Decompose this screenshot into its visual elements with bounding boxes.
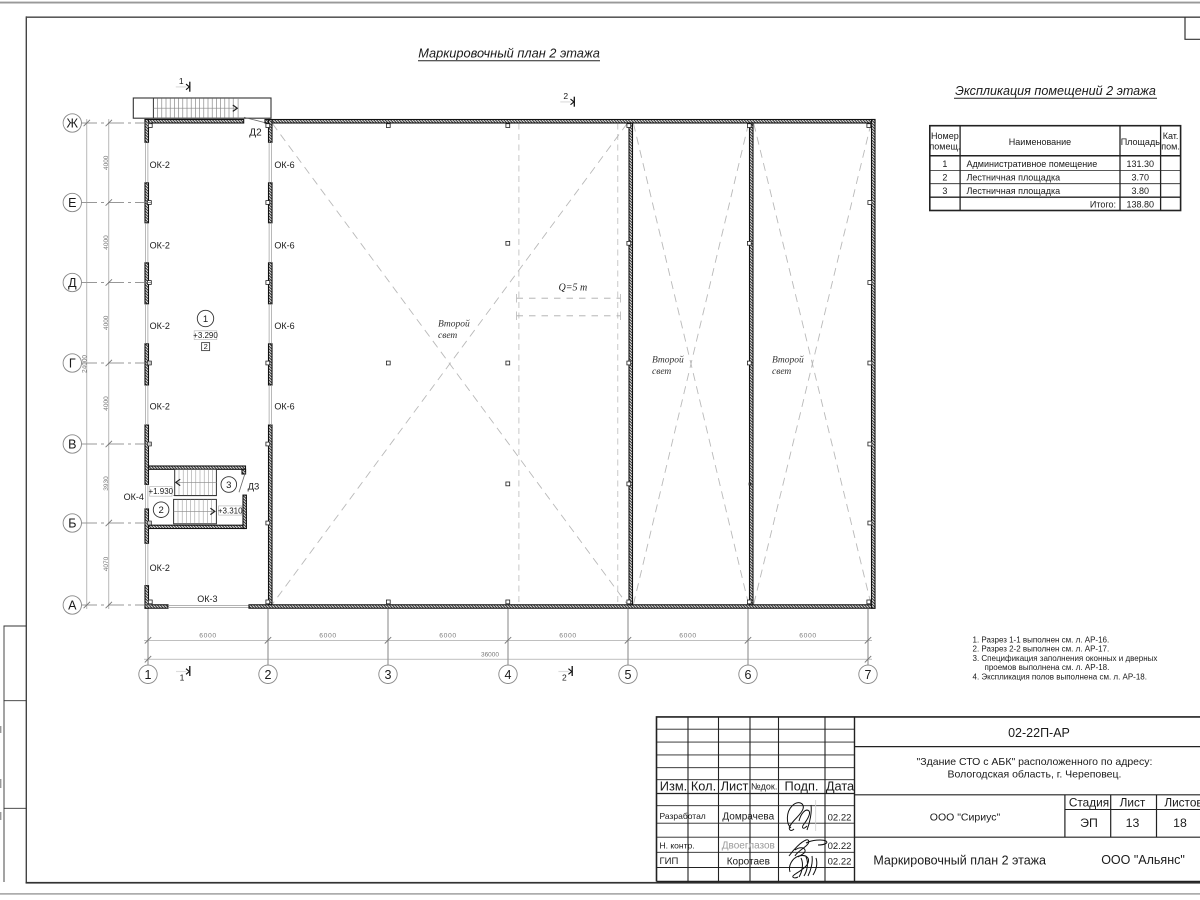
svg-text:свет: свет <box>772 367 791 377</box>
svg-text:ОК-2: ОК-2 <box>150 321 170 331</box>
svg-text:24000: 24000 <box>81 355 88 373</box>
svg-text:7: 7 <box>865 668 872 682</box>
svg-text:Лист: Лист <box>721 778 749 793</box>
svg-text:3: 3 <box>942 186 947 196</box>
svg-text:Номер: Номер <box>931 131 959 141</box>
svg-text:Е: Е <box>68 196 76 210</box>
svg-text:Г: Г <box>69 357 76 371</box>
svg-text:36000: 36000 <box>481 651 499 658</box>
svg-text:02.22: 02.22 <box>828 857 852 868</box>
svg-text:+1.930: +1.930 <box>148 487 173 496</box>
svg-text:02-22П-АР: 02-22П-АР <box>1008 726 1070 740</box>
svg-text:Итого:: Итого: <box>1090 199 1116 209</box>
svg-text:6000: 6000 <box>799 633 817 640</box>
svg-text:1: 1 <box>179 76 184 86</box>
svg-text:Маркировочный план 2 этажа: Маркировочный план 2 этажа <box>873 854 1046 868</box>
svg-text:помещ.: помещ. <box>929 142 960 152</box>
svg-text:6000: 6000 <box>319 633 337 640</box>
svg-text:Стадия: Стадия <box>1069 795 1109 809</box>
svg-text:13: 13 <box>1126 816 1140 830</box>
svg-text:5: 5 <box>625 668 632 682</box>
svg-text:А: А <box>68 599 77 613</box>
svg-text:1: 1 <box>180 673 185 683</box>
svg-text:Н. контр.: Н. контр. <box>660 841 695 851</box>
svg-text:Подп.: Подп. <box>785 778 819 793</box>
svg-text:Дата: Дата <box>826 778 855 793</box>
svg-text:3: 3 <box>385 668 392 682</box>
svg-text:6000: 6000 <box>559 633 577 640</box>
svg-text:В: В <box>68 438 76 452</box>
svg-text:138.80: 138.80 <box>1127 199 1155 209</box>
svg-text:Второй: Второй <box>652 355 684 366</box>
svg-text:3. Спецификация заполнения око: 3. Спецификация заполнения оконных и две… <box>973 654 1158 663</box>
svg-text:Кат.: Кат. <box>1163 131 1179 141</box>
svg-text:ОК-6: ОК-6 <box>274 160 294 170</box>
svg-text:Второй: Второй <box>438 319 470 330</box>
svg-text:Домрачева: Домрачева <box>722 812 774 823</box>
svg-text:Д3: Д3 <box>248 481 260 492</box>
svg-text:Административное помещение: Административное помещение <box>967 159 1098 169</box>
svg-text:Б: Б <box>68 517 76 531</box>
svg-text:1: 1 <box>145 668 152 682</box>
svg-text:Лестничная площадка: Лестничная площадка <box>967 173 1061 183</box>
svg-text:Маркировочный план 2 этажа: Маркировочный план 2 этажа <box>418 46 600 61</box>
svg-text:ОК-6: ОК-6 <box>274 402 294 412</box>
svg-text:4. Экспликация полов выполнена: 4. Экспликация полов выполнена см. л. АР… <box>973 673 1147 682</box>
svg-text:Лестничная площадка: Лестничная площадка <box>967 186 1061 196</box>
svg-text:4: 4 <box>505 668 512 682</box>
svg-text:2: 2 <box>563 91 568 101</box>
svg-text:№док.: №док. <box>751 782 777 792</box>
svg-text:проемов выполнена см. л. АР-18: проемов выполнена см. л. АР-18. <box>985 663 1110 672</box>
svg-text:6000: 6000 <box>439 633 457 640</box>
svg-text:6000: 6000 <box>679 633 697 640</box>
svg-text:02.22: 02.22 <box>828 812 852 823</box>
svg-text:4000: 4000 <box>103 396 110 411</box>
svg-text:+3.310: +3.310 <box>218 507 243 516</box>
svg-text:ОК-3: ОК-3 <box>197 594 217 604</box>
svg-text:1. Разрез 1-1 выполнен см. л.: 1. Разрез 1-1 выполнен см. л. АР-16. <box>973 635 1110 644</box>
svg-text:свет: свет <box>438 331 457 341</box>
svg-text:4000: 4000 <box>103 315 110 330</box>
svg-text:Изм.: Изм. <box>660 778 687 793</box>
svg-text:"Здание СТО с АБК" расположенн: "Здание СТО с АБК" расположенного по адр… <box>917 756 1153 768</box>
svg-text:02.22: 02.22 <box>828 841 852 852</box>
svg-text:2: 2 <box>265 668 272 682</box>
svg-text:Листов: Листов <box>1164 795 1200 809</box>
svg-text:Ж: Ж <box>67 117 79 131</box>
svg-text:18: 18 <box>1173 816 1187 830</box>
svg-text:2: 2 <box>204 342 208 351</box>
svg-text:Наименование: Наименование <box>1009 137 1071 147</box>
svg-text:ОК-2: ОК-2 <box>150 402 170 412</box>
svg-text:Вологодская область, г. Черепо: Вологодская область, г. Череповец. <box>948 768 1122 780</box>
svg-text:Экспликация помещений 2 этажа: Экспликация помещений 2 этажа <box>955 84 1156 98</box>
svg-text:ООО "Сириус": ООО "Сириус" <box>930 811 1001 823</box>
svg-text:6: 6 <box>745 668 752 682</box>
svg-text:Д2: Д2 <box>249 128 262 139</box>
svg-text:3.80: 3.80 <box>1132 186 1150 196</box>
svg-text:2: 2 <box>158 505 163 516</box>
svg-text:ГИП: ГИП <box>660 856 679 867</box>
svg-text:2. Разрез 2-2 выполнен см. л.: 2. Разрез 2-2 выполнен см. л. АР-17. <box>973 645 1110 654</box>
svg-text:6000: 6000 <box>199 633 217 640</box>
svg-text:Q=5 т: Q=5 т <box>559 283 588 294</box>
svg-text:ОК-2: ОК-2 <box>150 241 170 251</box>
svg-text:Площадь: Площадь <box>1121 137 1160 147</box>
svg-text:+3.290: +3.290 <box>193 331 218 340</box>
svg-text:Кол.: Кол. <box>691 778 716 793</box>
svg-text:Разработал: Разработал <box>660 811 706 821</box>
svg-text:3: 3 <box>226 480 231 491</box>
svg-text:ОК-2: ОК-2 <box>150 160 170 170</box>
svg-text:Второй: Второй <box>772 355 804 366</box>
svg-text:4070: 4070 <box>103 556 110 571</box>
svg-text:пом.: пом. <box>1161 142 1180 152</box>
svg-text:ОК-6: ОК-6 <box>274 321 294 331</box>
svg-text:Коротаев: Коротаев <box>727 856 770 867</box>
svg-text:Лист: Лист <box>1120 795 1146 809</box>
svg-text:свет: свет <box>652 367 671 377</box>
svg-text:1: 1 <box>203 314 208 325</box>
svg-text:ЭП: ЭП <box>1080 816 1098 830</box>
svg-text:ОК-2: ОК-2 <box>150 563 170 573</box>
svg-text:ООО "Альянс": ООО "Альянс" <box>1101 853 1185 867</box>
svg-text:4000: 4000 <box>103 155 110 170</box>
svg-text:ОК-4: ОК-4 <box>124 492 144 502</box>
svg-text:1: 1 <box>942 159 947 169</box>
svg-text:2: 2 <box>942 173 947 183</box>
svg-text:3930: 3930 <box>103 476 110 491</box>
svg-text:Двоеглазов: Двоеглазов <box>722 841 775 852</box>
svg-text:Д: Д <box>68 276 77 290</box>
svg-text:131.30: 131.30 <box>1127 159 1155 169</box>
svg-text:2: 2 <box>562 673 567 683</box>
svg-text:4000: 4000 <box>103 235 110 250</box>
svg-text:3.70: 3.70 <box>1132 173 1150 183</box>
svg-text:ОК-6: ОК-6 <box>274 241 294 251</box>
